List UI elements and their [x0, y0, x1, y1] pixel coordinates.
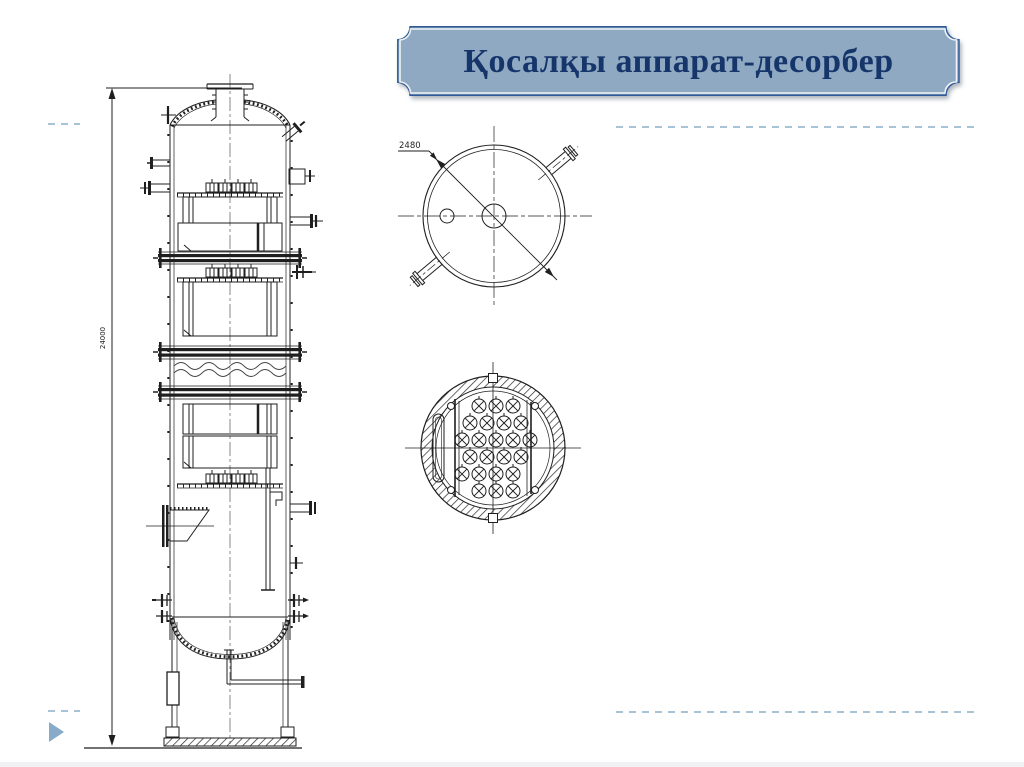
diameter-dimension-label: 2480 — [399, 141, 421, 151]
height-dimension-label: 24000 — [99, 327, 107, 349]
bubble-cap-field — [455, 396, 537, 498]
diameter-dimension: 2480 — [398, 141, 437, 160]
column-top-view: 2480 — [398, 126, 592, 308]
slide-bottom-edge — [0, 762, 1024, 767]
presentation-slide: Қосалқы аппарат-десорбер — [0, 0, 1024, 767]
column-elevation-view: 24000 — [84, 74, 323, 748]
tube-sheet-section-view — [405, 362, 581, 534]
engineering-drawing-canvas: 24000 — [0, 0, 1024, 767]
